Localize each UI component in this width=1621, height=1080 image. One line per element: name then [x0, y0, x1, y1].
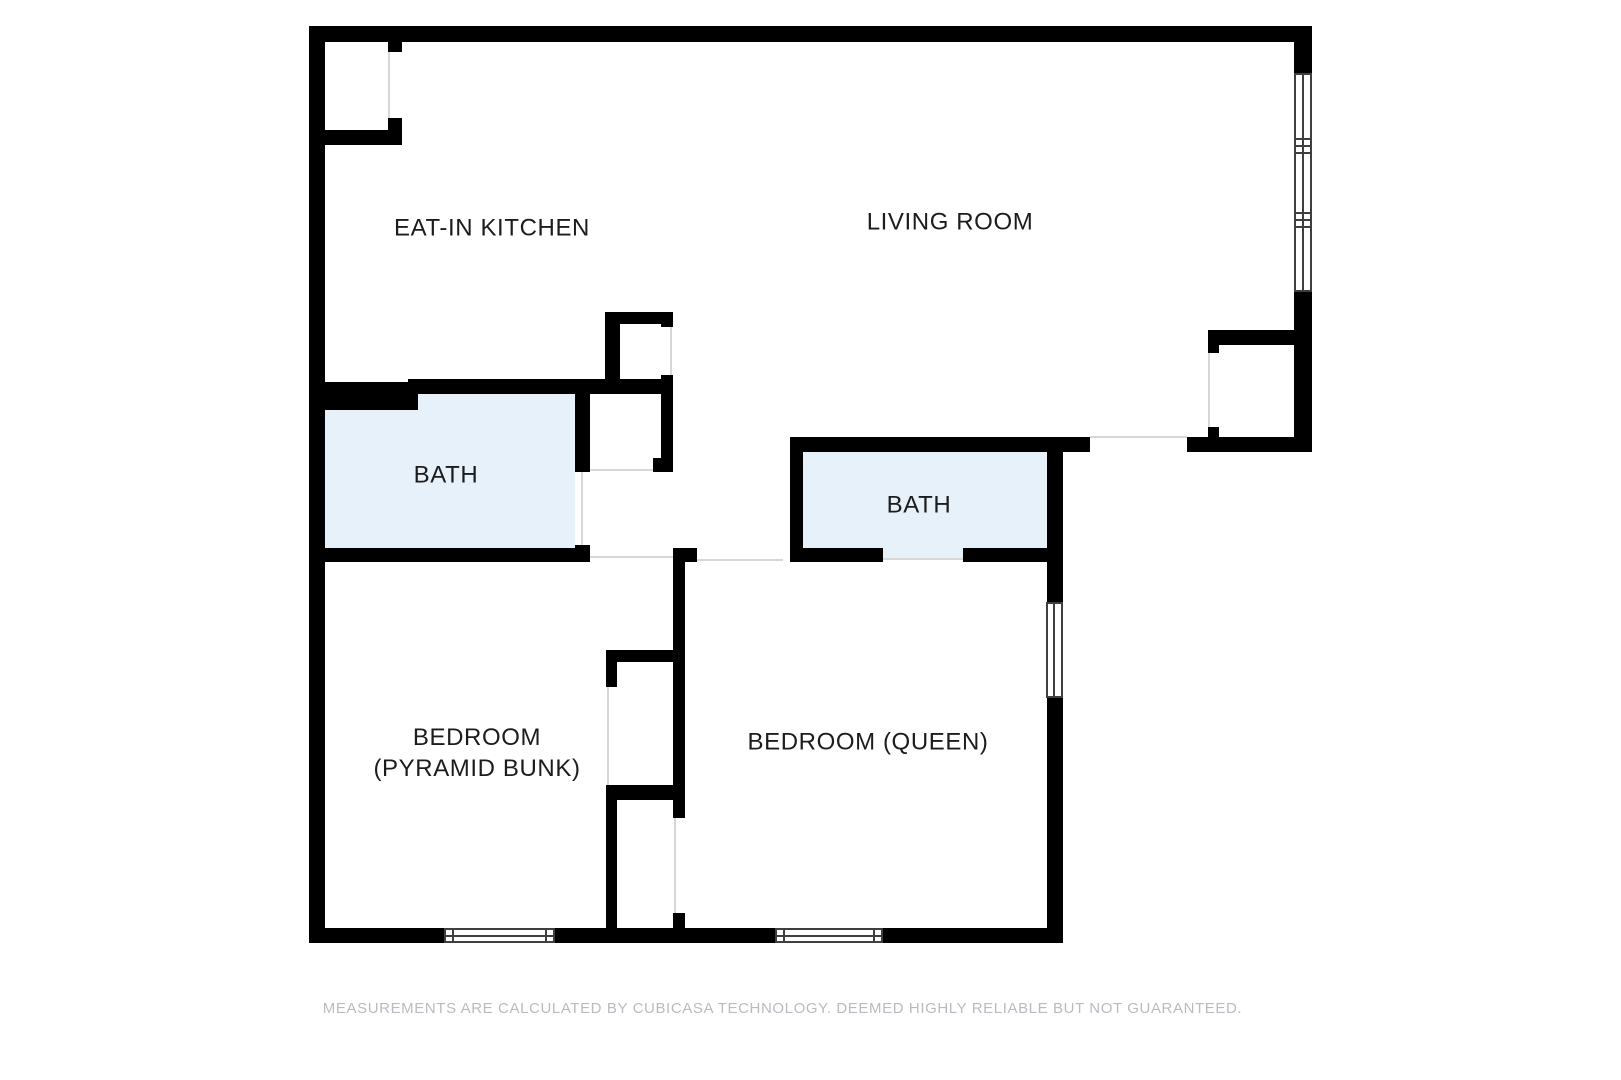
wall-outer-right-lower	[1294, 292, 1312, 452]
room-label-living-room: LIVING ROOM	[867, 207, 1034, 238]
window-pane-line	[1302, 75, 1304, 290]
entry-alcove-opening-line	[1208, 353, 1210, 427]
window-mullion-line	[1296, 219, 1310, 221]
kitchen-nook-opening-line	[388, 52, 390, 118]
wall-lower-closet-tick-right	[653, 458, 673, 472]
wall-bath-left-top	[408, 379, 673, 394]
bedroom-queen-window	[775, 928, 883, 943]
bedroom-queen-entry-line	[697, 559, 783, 561]
window-mullion-line	[1296, 145, 1310, 147]
wall-outer-left	[309, 26, 325, 943]
window-pane-line	[446, 935, 553, 937]
wall-nook-tick-top	[388, 40, 402, 52]
wall-bottom-left	[309, 928, 444, 943]
room-label-kitchen: EAT-IN KITCHEN	[394, 213, 590, 244]
wall-bath-right-bottom-right	[963, 548, 1063, 562]
wall-bath-right-left	[790, 437, 803, 560]
window-pane-line	[1053, 604, 1055, 696]
bedroom-bunk-entry-line	[590, 556, 673, 558]
living-room-window	[1294, 73, 1312, 292]
window-mullion-line	[1296, 212, 1310, 214]
wall-queen-east-lower	[1047, 698, 1063, 943]
disclaimer-text: MEASUREMENTS ARE CALCULATED BY CUBICASA …	[0, 1000, 1565, 1017]
wall-bottom-right	[883, 928, 1063, 943]
room-label-bedroom-queen: BEDROOM (QUEEN)	[747, 727, 988, 758]
room-label-bath-right: BATH	[887, 490, 952, 521]
wall-bottom-middle	[555, 928, 775, 943]
bath-left-door-line	[581, 472, 583, 545]
wall-alcove-tick-top	[1208, 345, 1219, 353]
lower-closet-opening-line	[590, 469, 653, 471]
wall-nook-tick-bottom	[388, 118, 402, 130]
wall-queen-west	[673, 548, 685, 818]
wall-bath-left-bottom	[309, 548, 590, 562]
room-label-bedroom-bunk: BEDROOM (PYRAMID BUNK)	[373, 722, 580, 784]
wall-bunk-east	[606, 800, 617, 928]
wall-nook-bottom	[317, 130, 402, 145]
window-mullion-line	[783, 930, 785, 941]
wall-upper-closet-tick	[661, 312, 673, 327]
wall-queen-west-tick	[673, 913, 685, 928]
wall-upper-closet-left	[605, 312, 620, 379]
window-mullion-line	[1296, 226, 1310, 228]
wall-alcove-bottom	[1187, 437, 1312, 452]
wall-alcove-tick-bottom	[1208, 427, 1219, 437]
window-mullion-line	[545, 930, 547, 941]
wall-bath-right-top	[790, 437, 1090, 452]
wall-bunk-closet-left-upper	[606, 650, 617, 687]
room-label-bedroom-bunk-line2: (PYRAMID BUNK)	[373, 753, 580, 784]
window-mullion-line	[452, 930, 454, 941]
wall-bath-right-bottom-left	[790, 548, 883, 562]
window-mullion-line	[873, 930, 875, 941]
wall-lower-closet-tick-left	[575, 458, 590, 472]
wall-queen-east-upper	[1047, 437, 1063, 602]
wall-lower-closet-right	[661, 375, 673, 470]
window-pane-line	[777, 935, 881, 937]
wall-bath-left-top-block	[310, 382, 418, 410]
wall-outer-top	[309, 26, 1312, 42]
wall-outer-right-upper	[1294, 26, 1312, 73]
queen-closet-opening-line	[674, 818, 676, 913]
room-label-bath-left: BATH	[414, 460, 479, 491]
bedroom-bunk-window	[444, 928, 555, 943]
window-mullion-line	[1296, 152, 1310, 154]
wall-alcove-top	[1208, 330, 1294, 345]
room-label-bedroom-bunk-line1: BEDROOM	[373, 722, 580, 753]
bunk-closet-opening-line	[607, 687, 609, 785]
living-room-entry-line	[1090, 436, 1187, 438]
wall-bunk-closet-bottom	[606, 785, 673, 800]
upper-closet-opening-line	[670, 327, 672, 375]
floor-plan-page: EAT-IN KITCHEN LIVING ROOM BATH BATH BED…	[0, 0, 1621, 1080]
window-mullion-line	[1296, 138, 1310, 140]
bath-right-door-line	[883, 558, 963, 560]
bedroom-queen-side-window	[1046, 602, 1063, 698]
